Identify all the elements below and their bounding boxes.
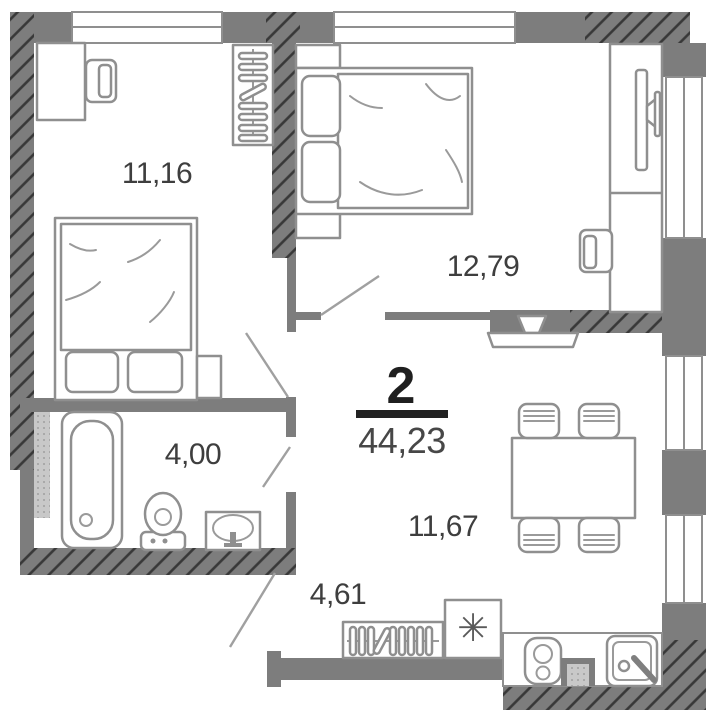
dining-table	[512, 438, 635, 518]
bathtub	[62, 412, 122, 548]
double-bed	[55, 218, 197, 400]
wall-top-right-corner	[585, 12, 690, 43]
rooms-count: 2	[387, 356, 416, 416]
window-right-living-b	[666, 515, 702, 603]
door-swing-bathroom	[263, 447, 290, 487]
kitchen-vent-block	[561, 658, 595, 686]
wardrobe-hangers	[343, 622, 443, 658]
living-kitchen-furniture	[503, 404, 662, 686]
nightstand	[296, 45, 340, 68]
wall-bedroom2-bottom-hatched	[570, 310, 662, 333]
door-swing-entrance	[230, 573, 275, 647]
bedroom2-furniture	[296, 44, 662, 347]
wall-hallway-bottom	[281, 658, 503, 680]
pillow	[302, 142, 340, 202]
desk-chair	[86, 60, 116, 102]
area-label-living-kitchen: 11,67	[408, 510, 478, 544]
area-label-bathroom: 4,00	[165, 438, 221, 472]
toilet	[141, 493, 185, 550]
wall-top-hatched-junction	[266, 12, 300, 43]
wall-bedroom2-bottom-thin	[296, 312, 321, 320]
dining-chair	[579, 404, 619, 438]
wall-top-segment	[300, 12, 334, 43]
window-right-living-a	[666, 356, 702, 450]
wall-right-pier	[662, 450, 706, 515]
window-top-left	[72, 12, 222, 43]
area-label-hallway: 4,61	[310, 578, 366, 612]
summary-divider-line	[356, 410, 448, 418]
door-swing-bedroom2	[321, 276, 379, 315]
area-label-bedroom1: 11,16	[122, 157, 192, 191]
window-right-bedroom	[666, 77, 702, 238]
wall-right-pier	[662, 43, 706, 77]
double-bed	[296, 68, 472, 214]
wall-bathroom-bottom	[20, 548, 296, 575]
wall-kitchen-bottom	[503, 686, 706, 710]
wall-entrance-cap	[267, 651, 281, 687]
dining-chair	[519, 518, 559, 552]
stove	[525, 638, 561, 684]
pillow	[66, 352, 118, 392]
area-label-bedroom2: 12,79	[447, 250, 520, 284]
desk	[37, 43, 85, 120]
pillow	[302, 76, 340, 136]
fridge-snowflake-icon: ✳	[457, 610, 489, 648]
door-swing-bedroom1	[246, 333, 288, 397]
wall-top-segment	[515, 12, 585, 43]
window-top-right	[334, 12, 515, 43]
floor-plan: 11,16 12,79 4,00 11,67 4,61 2 44,23 ✳	[0, 0, 720, 720]
washbasin	[206, 512, 260, 550]
nightstand	[296, 213, 340, 238]
wall-top-segment	[222, 12, 266, 43]
wall-left-lower	[20, 470, 34, 550]
total-area: 44,23	[358, 420, 446, 462]
pillow	[128, 352, 182, 392]
wall-bedroom-divider-thin	[287, 258, 296, 332]
wall-bedroom-divider	[272, 43, 296, 258]
nightstand	[197, 356, 221, 398]
dining-chair	[519, 404, 559, 438]
wall-bedroom2-bottom-thin	[385, 312, 490, 320]
bedroom1-furniture	[37, 43, 273, 400]
floor-plan-drawing	[0, 0, 720, 720]
wardrobe-hangers	[233, 45, 273, 145]
kitchen-sink	[607, 636, 657, 686]
desk-chair	[580, 230, 612, 272]
wall-bathroom-right-lower	[286, 492, 296, 548]
wall-right-pier	[662, 238, 706, 356]
bathroom-fixtures	[62, 412, 260, 550]
dining-chair	[579, 518, 619, 552]
ventilation-shaft	[34, 412, 50, 518]
